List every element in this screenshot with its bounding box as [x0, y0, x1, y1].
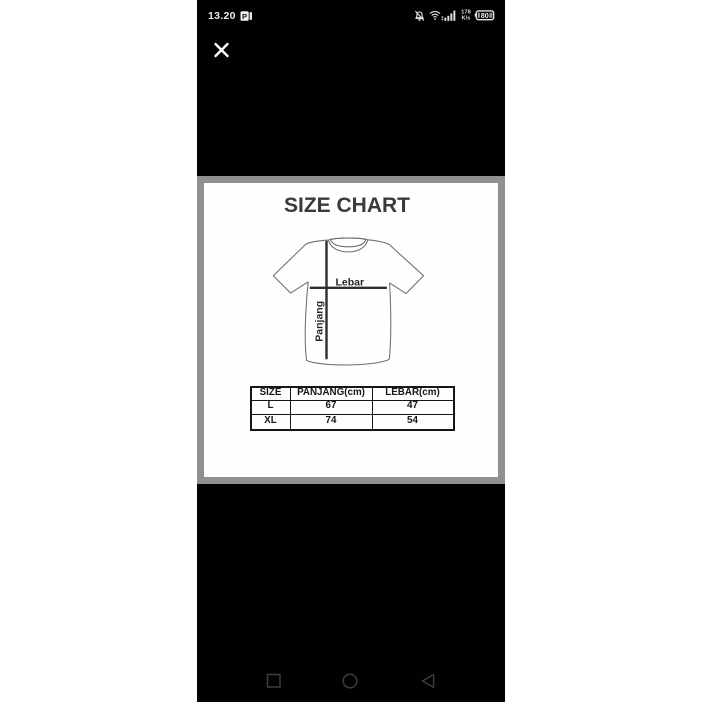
- svg-text:178: 178: [461, 9, 471, 15]
- svg-text:P: P: [242, 12, 247, 21]
- svg-text:Lebar: Lebar: [336, 277, 365, 289]
- svg-text:80: 80: [481, 11, 489, 20]
- svg-text:Panjang: Panjang: [314, 301, 326, 342]
- svg-text:K/s: K/s: [461, 16, 470, 21]
